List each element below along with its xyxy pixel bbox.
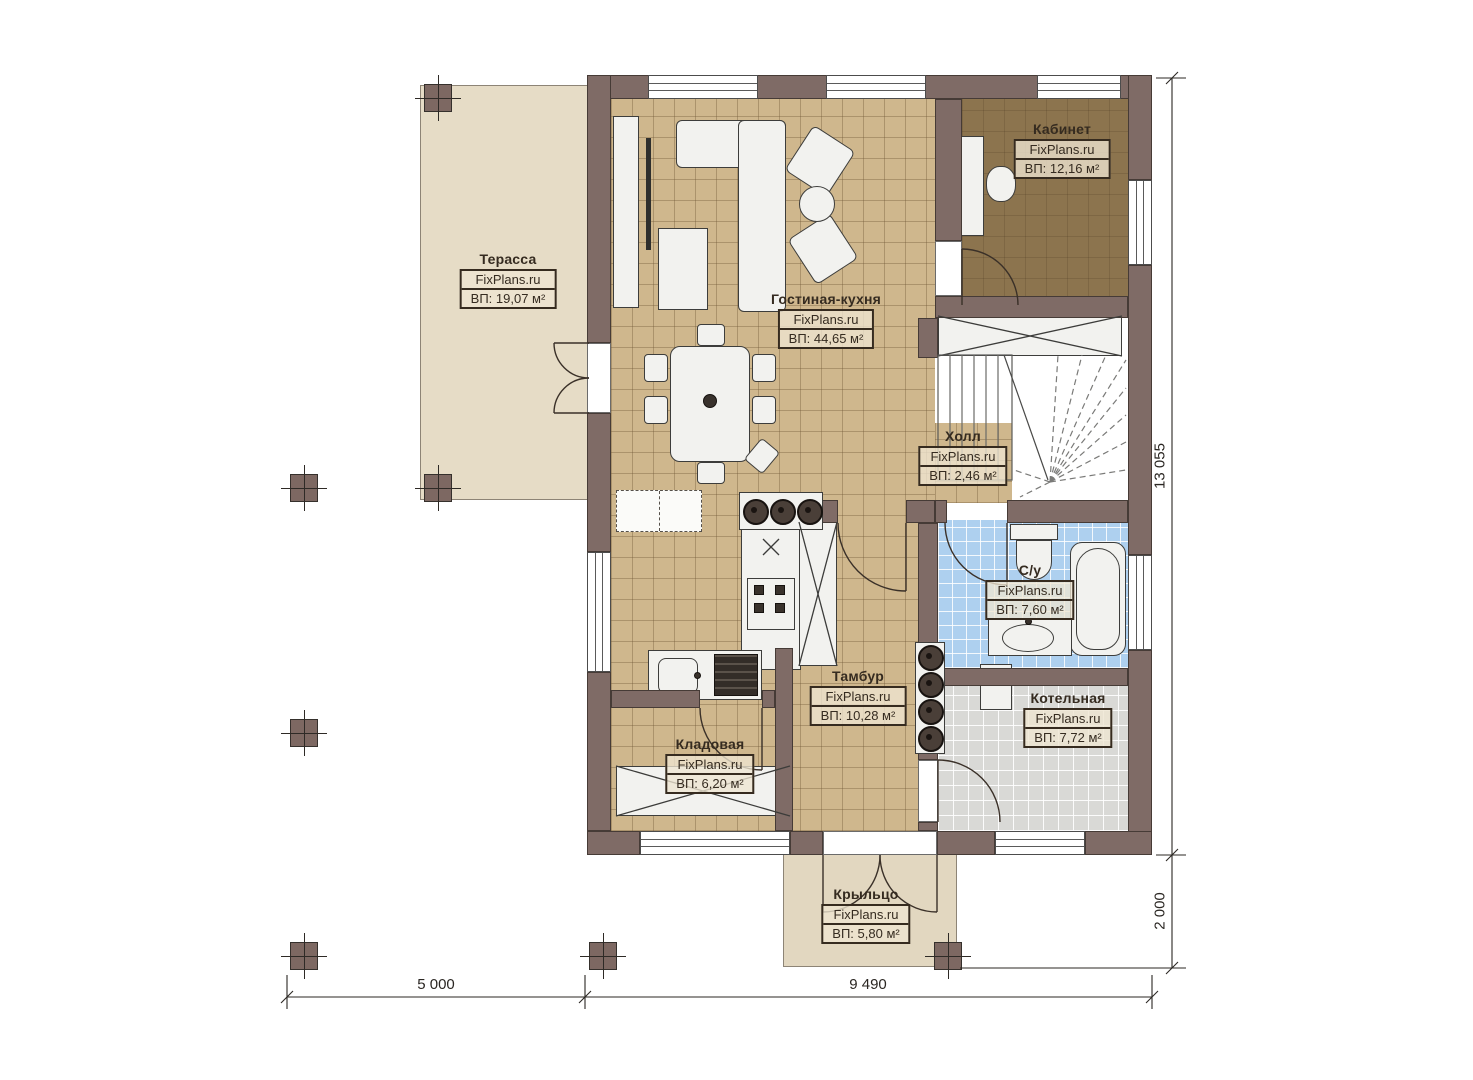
- room-brand: FixPlans.ru: [667, 756, 752, 773]
- room-label-boiler: Котельная FixPlans.ru ВП: 7,72 м²: [1023, 690, 1112, 748]
- room-plate: FixPlans.ru ВП: 10,28 м²: [810, 686, 907, 726]
- room-name: Крыльцо: [833, 886, 898, 902]
- room-name: С/у: [1019, 562, 1041, 578]
- room-name: Кабинет: [1033, 121, 1091, 137]
- room-label-living: Гостиная-кухня FixPlans.ru ВП: 44,65 м²: [771, 291, 881, 349]
- room-area: ВП: 12,16 м²: [1016, 158, 1109, 177]
- dimension-lines: [281, 72, 1186, 1009]
- room-area: ВП: 7,60 м²: [987, 599, 1072, 618]
- dim-porch-offset: 2 000: [1152, 892, 1169, 930]
- room-area: ВП: 2,46 м²: [920, 465, 1005, 484]
- room-brand: FixPlans.ru: [462, 271, 555, 288]
- room-brand: FixPlans.ru: [1016, 141, 1109, 158]
- room-plate: FixPlans.ru ВП: 6,20 м²: [665, 754, 754, 794]
- room-name: Терасса: [480, 251, 537, 267]
- dim-total-height: 13 055: [1152, 443, 1169, 489]
- dim-right-span: 9 490: [849, 976, 887, 993]
- room-label-office: Кабинет FixPlans.ru ВП: 12,16 м²: [1014, 121, 1111, 179]
- room-plate: FixPlans.ru ВП: 5,80 м²: [821, 904, 910, 944]
- room-area: ВП: 5,80 м²: [823, 923, 908, 942]
- room-area: ВП: 7,72 м²: [1025, 727, 1110, 746]
- room-name: Котельная: [1030, 690, 1105, 706]
- room-brand: FixPlans.ru: [1025, 710, 1110, 727]
- room-label-bathroom: С/у FixPlans.ru ВП: 7,60 м²: [985, 562, 1074, 620]
- room-plate: FixPlans.ru ВП: 44,65 м²: [778, 309, 875, 349]
- room-brand: FixPlans.ru: [987, 582, 1072, 599]
- room-label-porch: Крыльцо FixPlans.ru ВП: 5,80 м²: [821, 886, 910, 944]
- linework-overlay: [0, 0, 1473, 1080]
- room-area: ВП: 10,28 м²: [812, 705, 905, 724]
- room-plate: FixPlans.ru ВП: 2,46 м²: [918, 446, 1007, 486]
- room-area: ВП: 44,65 м²: [780, 328, 873, 347]
- room-plate: FixPlans.ru ВП: 7,72 м²: [1023, 708, 1112, 748]
- room-name: Кладовая: [676, 736, 745, 752]
- room-label-terrace: Терасса FixPlans.ru ВП: 19,07 м²: [460, 251, 557, 309]
- room-plate: FixPlans.ru ВП: 7,60 м²: [985, 580, 1074, 620]
- room-label-storage: Кладовая FixPlans.ru ВП: 6,20 м²: [665, 736, 754, 794]
- room-brand: FixPlans.ru: [812, 688, 905, 705]
- room-brand: FixPlans.ru: [780, 311, 873, 328]
- staircase-winders: [1014, 355, 1126, 497]
- room-label-hall: Холл FixPlans.ru ВП: 2,46 м²: [918, 428, 1007, 486]
- room-brand: FixPlans.ru: [823, 906, 908, 923]
- room-brand: FixPlans.ru: [920, 448, 1005, 465]
- room-plate: FixPlans.ru ВП: 12,16 м²: [1014, 139, 1111, 179]
- floor-plan: Терасса FixPlans.ru ВП: 19,07 м² Кабинет…: [0, 0, 1473, 1080]
- room-plate: FixPlans.ru ВП: 19,07 м²: [460, 269, 557, 309]
- room-name: Гостиная-кухня: [771, 291, 881, 307]
- room-label-vestibule: Тамбур FixPlans.ru ВП: 10,28 м²: [810, 668, 907, 726]
- room-area: ВП: 6,20 м²: [667, 773, 752, 792]
- room-name: Холл: [945, 428, 981, 444]
- dim-left-span: 5 000: [417, 976, 455, 993]
- room-name: Тамбур: [832, 668, 884, 684]
- room-area: ВП: 19,07 м²: [462, 288, 555, 307]
